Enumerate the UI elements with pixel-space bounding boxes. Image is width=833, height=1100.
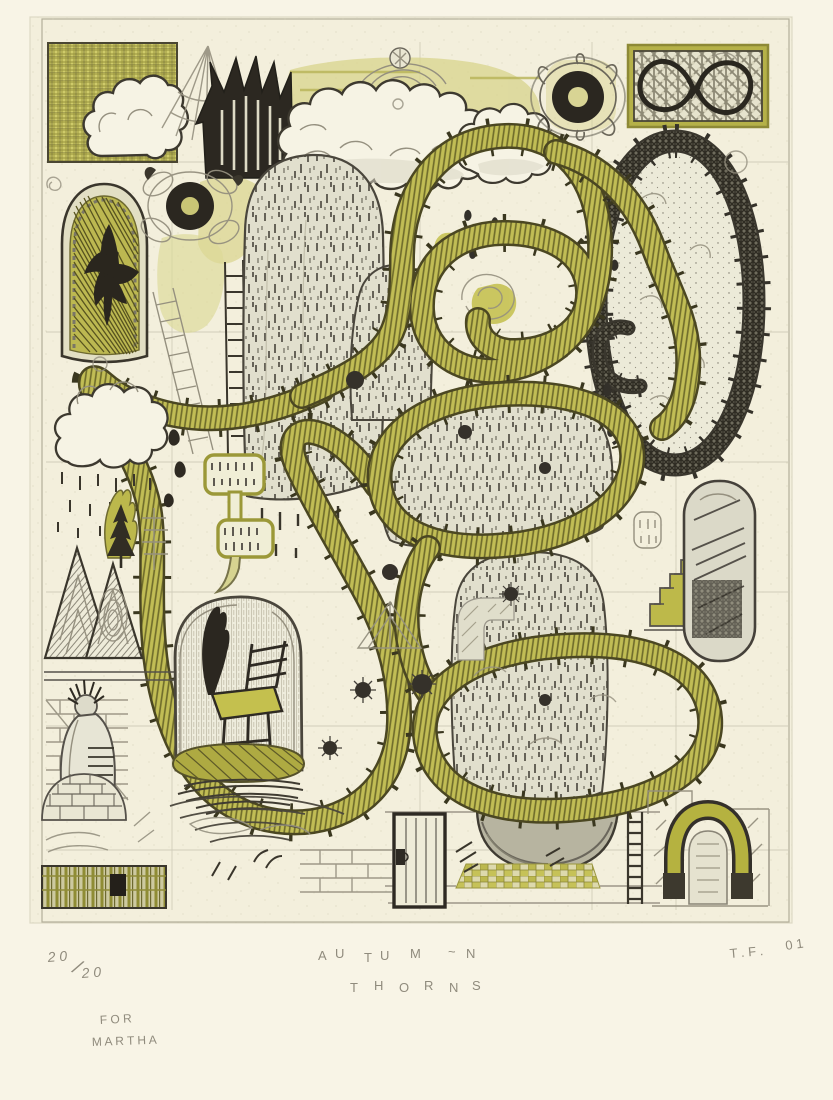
- svg-text:2 0: 2 0: [80, 964, 102, 981]
- svg-text:T: T: [350, 980, 358, 995]
- svg-text:2 0: 2 0: [46, 948, 68, 965]
- svg-text:F O R: F O R: [99, 1011, 132, 1027]
- svg-text:T: T: [364, 950, 372, 965]
- svg-text:R: R: [424, 978, 433, 993]
- svg-text:A: A: [318, 948, 327, 963]
- svg-text:M: M: [410, 946, 421, 961]
- svg-text:H: H: [374, 978, 383, 993]
- svg-text:S: S: [472, 978, 481, 993]
- svg-text:0 1: 0 1: [784, 936, 804, 953]
- svg-text:T . F .: T . F .: [729, 943, 764, 961]
- svg-text:N: N: [466, 946, 475, 961]
- svg-text:O: O: [399, 980, 409, 995]
- svg-text:M A R T H A: M A R T H A: [92, 1033, 157, 1049]
- svg-text:~: ~: [448, 944, 456, 959]
- svg-text:U: U: [380, 948, 389, 963]
- svg-text:N: N: [449, 980, 458, 995]
- svg-text:U: U: [335, 946, 344, 961]
